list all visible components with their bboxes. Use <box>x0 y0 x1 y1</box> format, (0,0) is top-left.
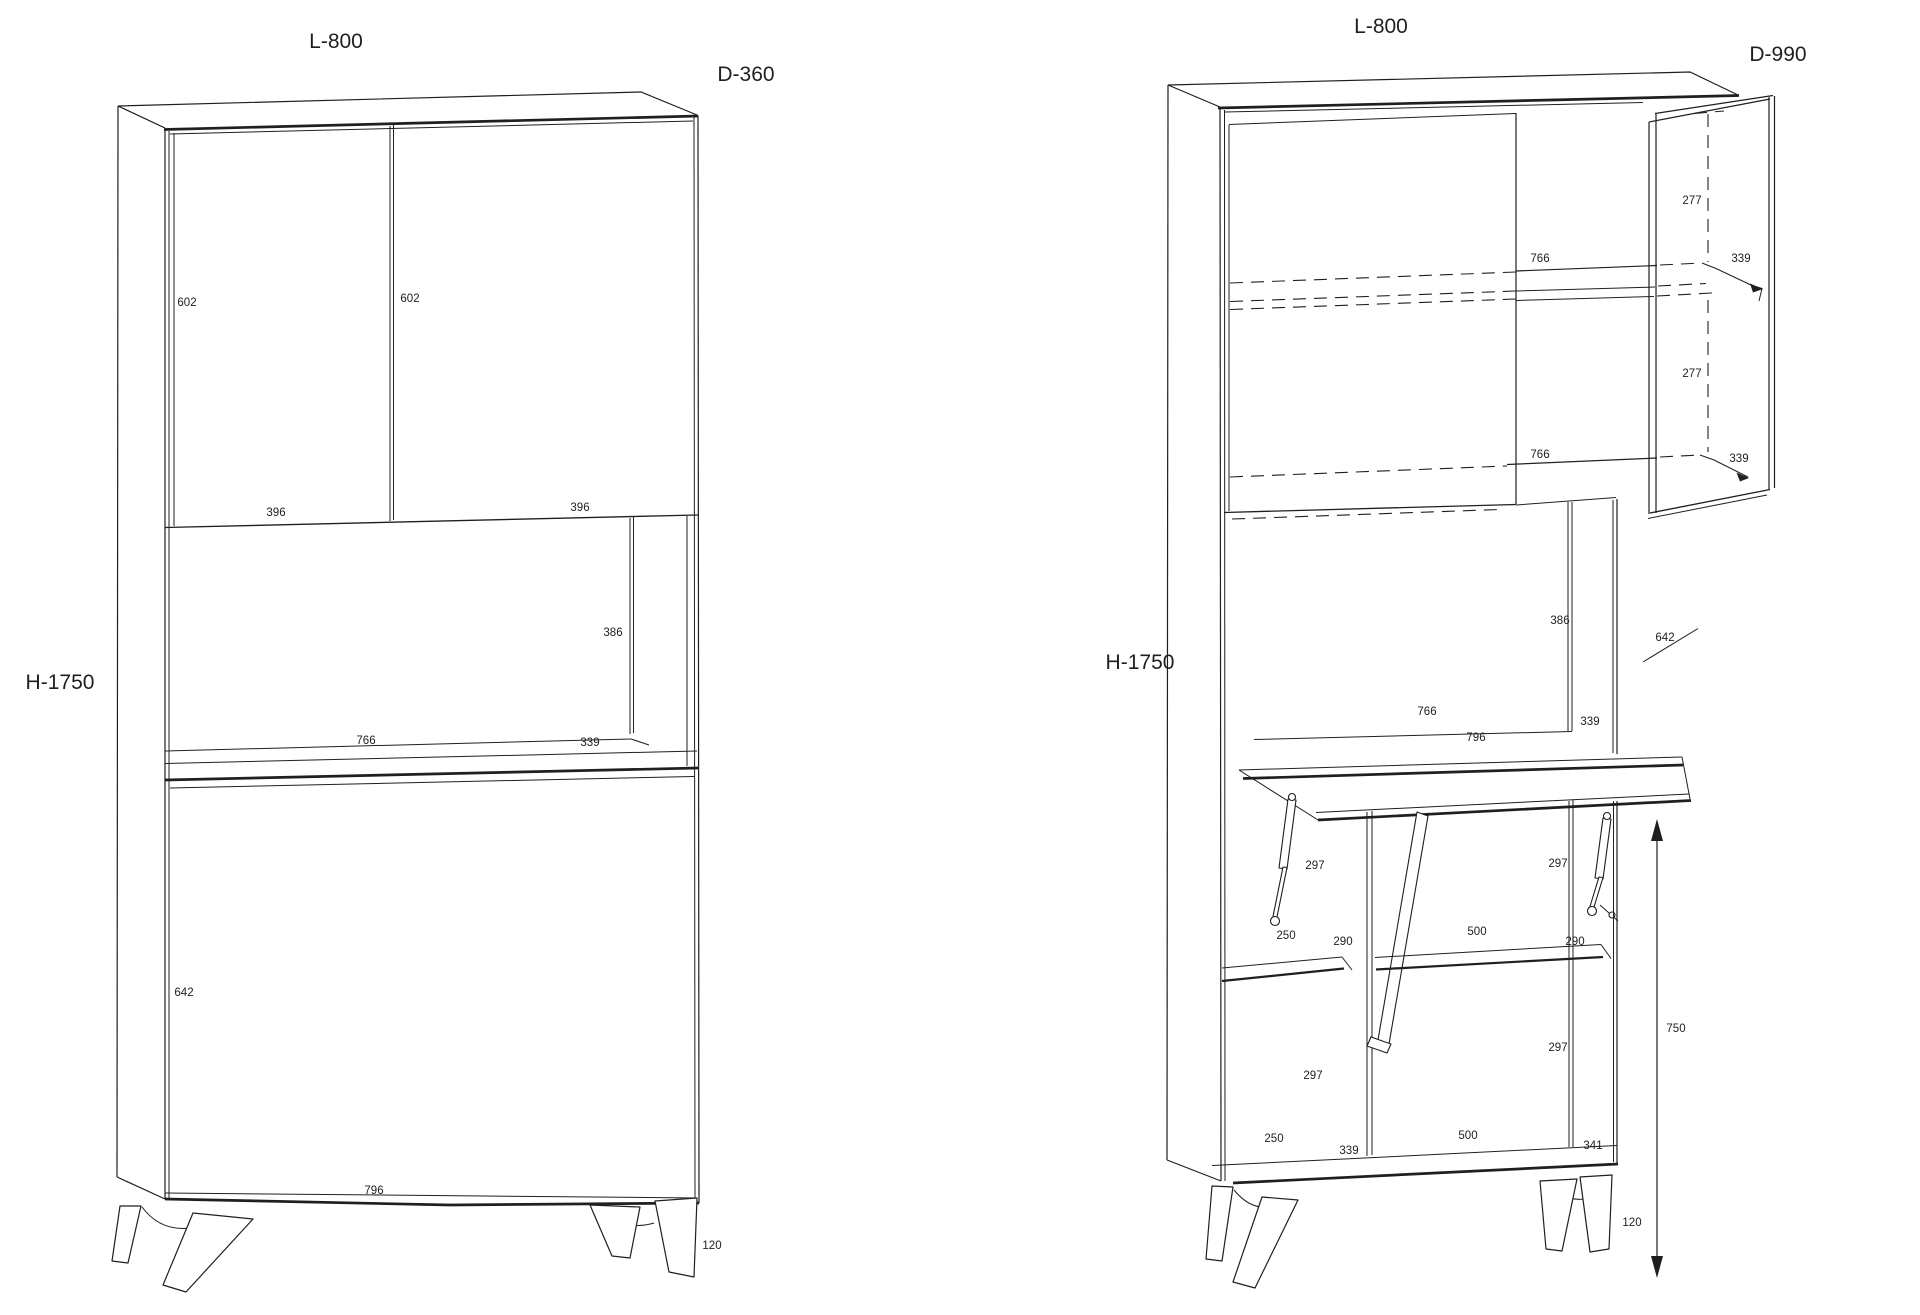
dim-door-right-width: 396 <box>570 502 589 514</box>
dim-niche-height: 386 <box>603 627 622 639</box>
dim-leg-height: 120 <box>702 1240 721 1252</box>
right-view-desk-flap <box>1239 629 1698 821</box>
dim-left-shelf-depth: 290 <box>1333 936 1352 948</box>
dim-lower-door-height: 642 <box>174 987 193 999</box>
right-view-open-cabinet: L-800 D-990 H-1750 277 766 339 277 766 3… <box>1106 15 1807 1288</box>
left-view-dimension-labels: L-800 D-360 H-1750 602 602 396 396 386 7… <box>26 30 775 1252</box>
dim-desk-height: 750 <box>1666 1023 1685 1035</box>
dim-top-shelf-depth: 339 <box>1731 253 1750 265</box>
technical-drawing-page: L-800 D-360 H-1750 602 602 396 396 386 7… <box>0 0 1920 1315</box>
dim-right-upper-height: 297 <box>1548 858 1567 870</box>
dim-right-niche-depth: 339 <box>1580 716 1599 728</box>
dim-right-lower-height: 297 <box>1548 1042 1567 1054</box>
dim-door-left-height: 602 <box>177 297 196 309</box>
left-view-carcass-outline <box>117 92 699 1205</box>
dim-top-shelf-width: 766 <box>1530 253 1549 265</box>
dim-mid-gap-height: 277 <box>1682 368 1701 380</box>
right-view-legs <box>1206 1175 1612 1288</box>
dim-left-upper-height: 297 <box>1305 860 1324 872</box>
dim-left-shelf-width: 250 <box>1276 930 1295 942</box>
left-view-legs <box>112 1198 697 1292</box>
dim-right-shelf-depth: 290 <box>1565 936 1584 948</box>
dim-bottom-right-depth: 341 <box>1583 1140 1602 1152</box>
dim-bottom-left-depth: 339 <box>1339 1145 1358 1157</box>
dim-top-gap-height: 277 <box>1682 195 1701 207</box>
dim-right-niche-width: 766 <box>1417 706 1436 718</box>
dim-desk-width: 796 <box>1466 732 1485 744</box>
dim-right-leg-height: 120 <box>1622 1217 1641 1229</box>
furniture-dimension-drawing: L-800 D-360 H-1750 602 602 396 396 386 7… <box>0 0 1920 1315</box>
left-depth-label: D-360 <box>717 63 774 86</box>
left-height-label: H-1750 <box>26 671 95 694</box>
dim-door-left-width: 396 <box>266 507 285 519</box>
right-view-open-right-door <box>1648 96 1775 519</box>
left-width-label: L-800 <box>309 30 363 53</box>
right-view-carcass-outline <box>1167 72 1739 1183</box>
right-view-closed-left-door <box>1224 113 1516 513</box>
right-view-hidden-shelf-dashes <box>1230 272 1516 519</box>
dim-bottom-left-width: 250 <box>1264 1133 1283 1145</box>
right-width-label: L-800 <box>1354 15 1408 38</box>
right-view-height-dimension-arrow <box>1651 819 1663 1278</box>
right-depth-label: D-990 <box>1749 43 1806 66</box>
right-height-label: H-1750 <box>1106 651 1175 674</box>
dim-right-shelf-width: 500 <box>1467 926 1486 938</box>
dim-mid-shelf-depth: 339 <box>1729 453 1748 465</box>
left-view-closed-cabinet: L-800 D-360 H-1750 602 602 396 396 386 7… <box>26 30 775 1292</box>
dim-niche-depth: 339 <box>580 737 599 749</box>
right-view-interior-shelves <box>1507 111 1763 505</box>
right-view-dimension-labels: L-800 D-990 H-1750 277 766 339 277 766 3… <box>1106 15 1807 1229</box>
dim-door-right-height: 602 <box>400 293 419 305</box>
left-view-upper-doors <box>165 125 698 528</box>
dim-right-niche-height: 386 <box>1550 615 1569 627</box>
dim-desk-depth: 642 <box>1655 632 1674 644</box>
dim-left-lower-height: 297 <box>1303 1070 1322 1082</box>
dim-mid-shelf-width: 766 <box>1530 449 1549 461</box>
dim-niche-width: 766 <box>356 735 375 747</box>
dim-base-width: 796 <box>364 1185 383 1197</box>
left-view-open-niche <box>165 516 698 788</box>
dim-bottom-right-width: 500 <box>1458 1130 1477 1142</box>
